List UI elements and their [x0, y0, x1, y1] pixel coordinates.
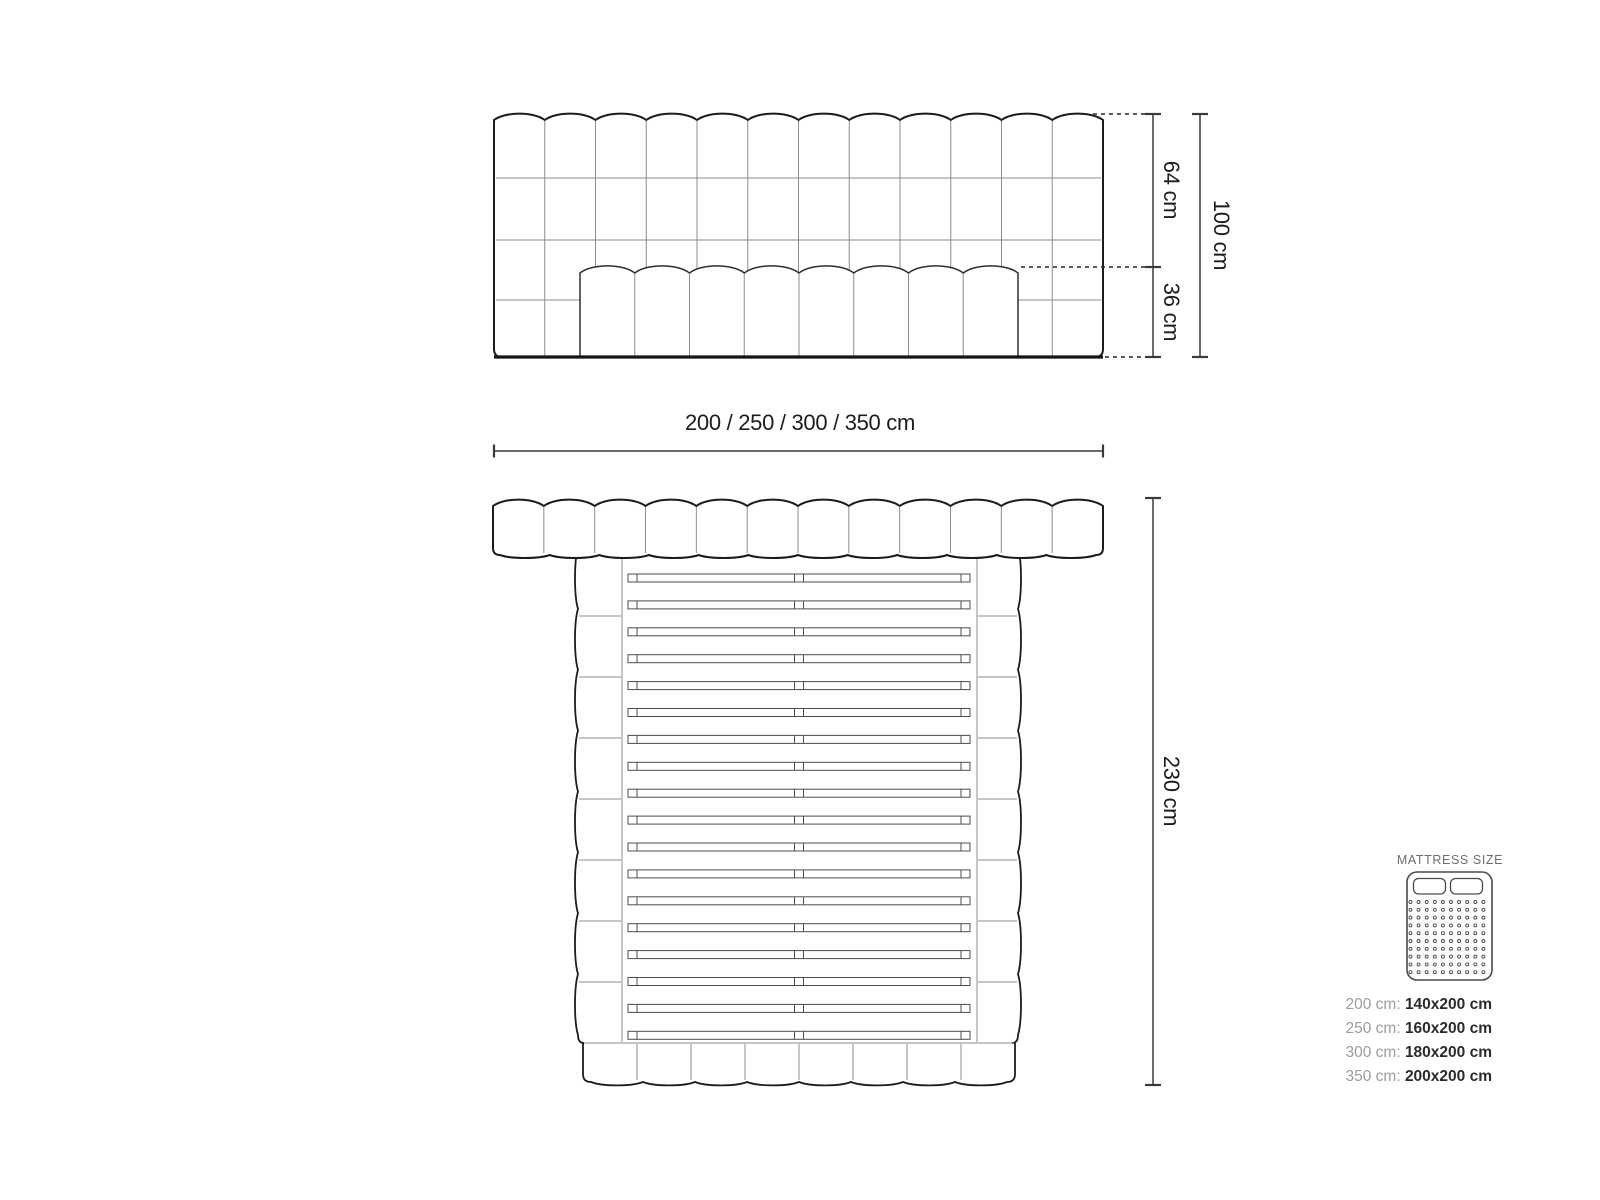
- slat: [628, 1031, 970, 1039]
- mattress-dims-value: 160x200 cm: [1405, 1020, 1492, 1037]
- pillow-icon: [1451, 879, 1483, 895]
- mattress-size-row: 300 cm: 180x200 cm: [1345, 1041, 1492, 1065]
- mattress-dims-value: 140x200 cm: [1405, 996, 1492, 1013]
- pillow-icon: [1414, 879, 1446, 895]
- slat: [628, 789, 970, 797]
- mattress-size-row: 350 cm: 200x200 cm: [1345, 1065, 1492, 1089]
- mattress-size-list: 200 cm: 140x200 cm 250 cm: 160x200 cm 30…: [1345, 993, 1492, 1089]
- front-view-drawing: [494, 114, 1103, 357]
- slat: [628, 924, 970, 932]
- slat: [628, 897, 970, 905]
- frame-size-label: 300 cm:: [1345, 1044, 1400, 1061]
- frame-size-label: 200 cm:: [1345, 996, 1400, 1013]
- slat: [628, 735, 970, 743]
- frame-size-label: 350 cm:: [1345, 1068, 1400, 1085]
- slat: [628, 816, 970, 824]
- slat: [628, 709, 970, 717]
- slat: [628, 951, 970, 959]
- slat: [628, 1004, 970, 1012]
- slat: [628, 601, 970, 609]
- lower-height-dimension-label: 36 cm: [1160, 283, 1182, 341]
- frame-size-label: 250 cm:: [1345, 1020, 1400, 1037]
- top-view-drawing: [493, 500, 1103, 1086]
- slat: [628, 628, 970, 636]
- mattress-dims-value: 200x200 cm: [1405, 1068, 1492, 1085]
- mattress-dims-value: 180x200 cm: [1405, 1044, 1492, 1061]
- mattress-size-row: 250 cm: 160x200 cm: [1345, 1017, 1492, 1041]
- mattress-size-title: MATTRESS SIZE: [1350, 853, 1550, 867]
- slat: [628, 978, 970, 986]
- total-height-dimension-label: 100 cm: [1210, 200, 1232, 270]
- slat: [628, 762, 970, 770]
- mattress-size-row: 200 cm: 140x200 cm: [1345, 993, 1492, 1017]
- width-dimension-label: 200 / 250 / 300 / 350 cm: [685, 412, 915, 434]
- slat: [628, 843, 970, 851]
- slat: [628, 870, 970, 878]
- slat: [628, 574, 970, 582]
- mattress-icon: [1407, 872, 1492, 980]
- length-dimension-label: 230 cm: [1160, 756, 1182, 826]
- upper-height-dimension-label: 64 cm: [1160, 161, 1182, 219]
- bed-dimension-diagram-page: 200 / 250 / 300 / 350 cm 64 cm 36 cm 100…: [0, 0, 1600, 1200]
- slat: [628, 655, 970, 663]
- slat: [628, 682, 970, 690]
